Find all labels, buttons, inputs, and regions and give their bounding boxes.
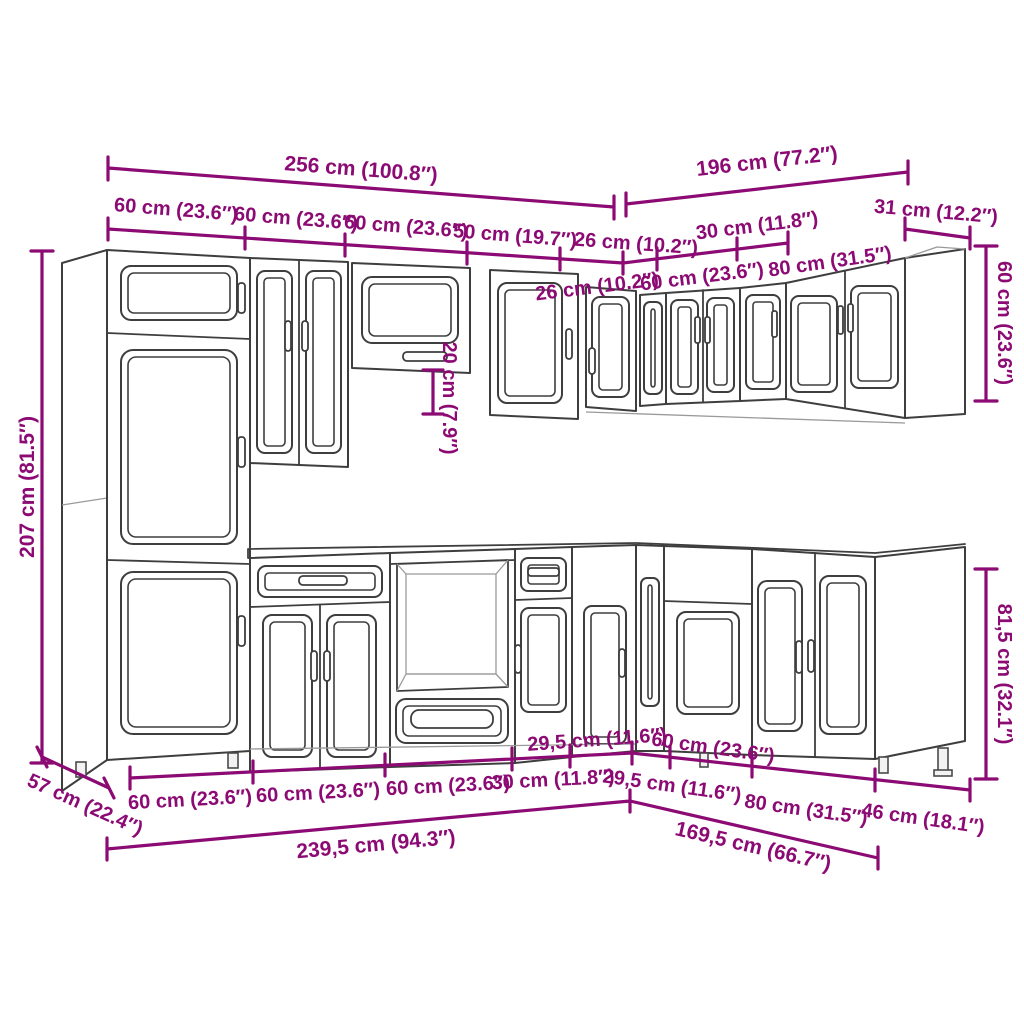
cabinet-leg bbox=[228, 753, 238, 768]
dim-total-top-left: 256 cm (100.8″) bbox=[284, 152, 439, 187]
cabinet-leg-foot bbox=[934, 770, 952, 776]
door-handle bbox=[238, 437, 245, 467]
dim-top-60-3: 60 cm (23.6″) bbox=[343, 211, 468, 243]
dim-top-26-left: 26 cm (10.2″) bbox=[573, 229, 698, 260]
door-handle bbox=[311, 651, 317, 681]
door-handle bbox=[589, 348, 595, 374]
dim-total-bottom-right: 169,5 cm (66.7″) bbox=[673, 817, 834, 875]
kitchen-dimension-diagram: 256 cm (100.8″) 196 cm (77.2″) 60 cm (23… bbox=[0, 0, 1024, 1024]
door-handle bbox=[238, 283, 245, 313]
door-handle bbox=[238, 616, 245, 646]
dim-height-207: 207 cm (81.5″) bbox=[16, 416, 39, 558]
door-handle bbox=[324, 651, 330, 681]
door-handle bbox=[796, 641, 802, 673]
drawer-handle bbox=[411, 710, 493, 728]
dim-total-bottom-left: 239,5 cm (94.3″) bbox=[295, 826, 456, 864]
door-handle bbox=[515, 645, 521, 673]
door-handle bbox=[285, 321, 291, 351]
dim-top-31-right: 31 cm (12.2″) bbox=[873, 196, 999, 229]
drawer-handle bbox=[299, 576, 347, 585]
door-handle bbox=[808, 640, 814, 672]
door-handle bbox=[695, 317, 700, 343]
cabinet-leg bbox=[938, 748, 948, 772]
door-handle bbox=[705, 317, 710, 343]
tall-pantry-cabinet bbox=[62, 250, 250, 791]
dim-bottom-60-1: 60 cm (23.6″) bbox=[127, 786, 252, 814]
dim-base-height-815: 81,5 cm (32.1″) bbox=[993, 604, 1015, 745]
drawer-handle bbox=[528, 568, 559, 576]
dim-bottom-80-right: 80 cm (31.5″) bbox=[743, 790, 869, 829]
door-handle bbox=[302, 321, 308, 351]
door-handle bbox=[619, 649, 625, 677]
dim-gap-20: 20 cm (7.9″) bbox=[438, 342, 460, 455]
dim-top-60-2: 60 cm (23.6″) bbox=[233, 203, 358, 235]
cabinet-leg bbox=[879, 757, 888, 773]
dim-wall-height-60: 60 cm (23.6″) bbox=[993, 261, 1015, 385]
dim-bottom-46-right: 46 cm (18.1″) bbox=[860, 799, 986, 838]
dim-total-top-right: 196 cm (77.2″) bbox=[695, 142, 839, 181]
dim-top-60-1: 60 cm (23.6″) bbox=[113, 194, 238, 226]
dim-top-30-right: 30 cm (11.8″) bbox=[695, 208, 820, 245]
dim-bottom-30: 30 cm (11.8″) bbox=[491, 766, 615, 794]
wall-cabinets-left-wing bbox=[250, 258, 578, 467]
diagram-canvas: 256 cm (100.8″) 196 cm (77.2″) 60 cm (23… bbox=[0, 0, 1024, 1024]
door-handle bbox=[838, 306, 843, 334]
door-handle bbox=[772, 311, 777, 337]
dim-bottom-60-2: 60 cm (23.6″) bbox=[255, 779, 380, 807]
door-handle bbox=[848, 304, 853, 332]
dim-top-50: 50 cm (19.7″) bbox=[452, 220, 577, 252]
door-handle bbox=[566, 329, 572, 359]
